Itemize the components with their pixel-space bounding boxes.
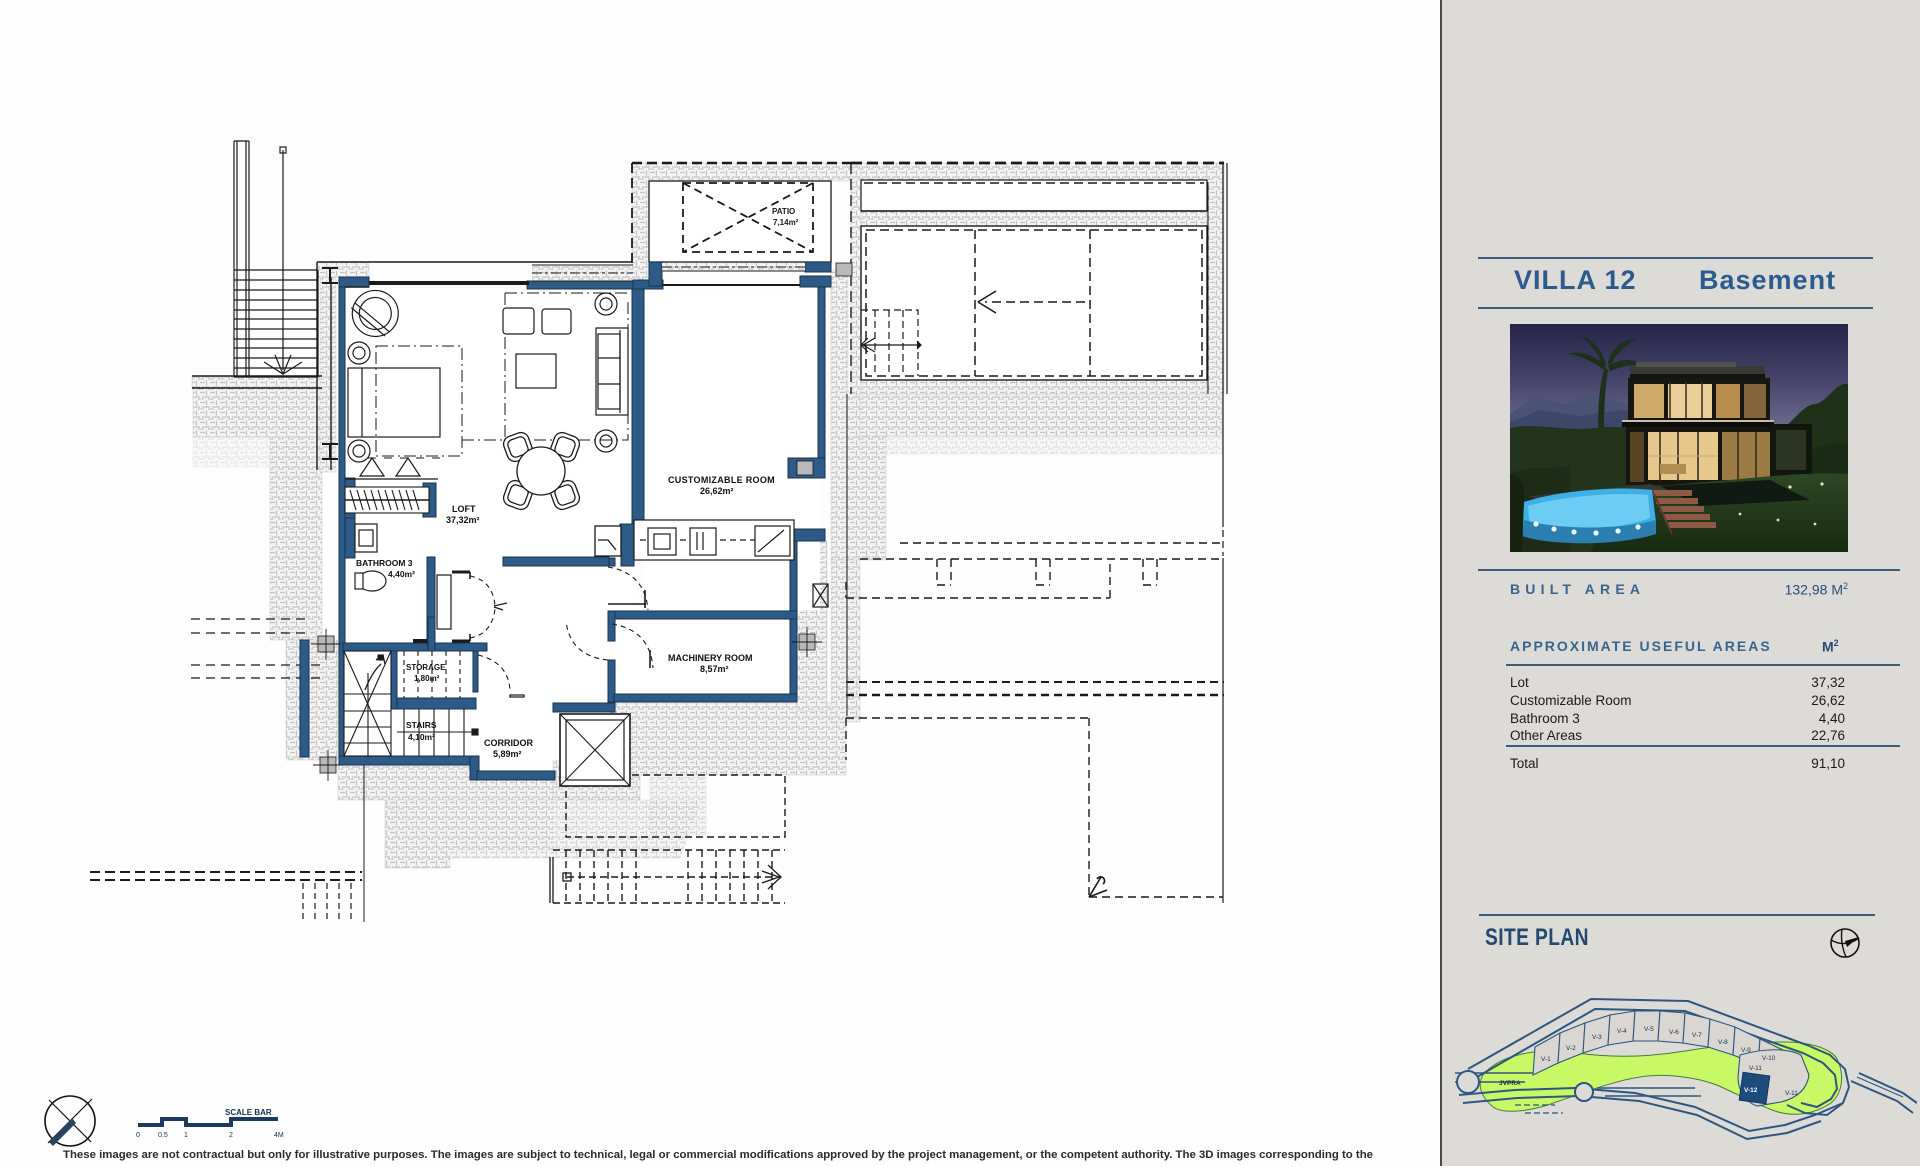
svg-text:V-9: V-9 bbox=[1741, 1047, 1751, 1054]
svg-text:CUSTOMIZABLE ROOM: CUSTOMIZABLE ROOM bbox=[668, 475, 775, 485]
svg-text:V-7: V-7 bbox=[1692, 1032, 1702, 1039]
svg-text:0.5: 0.5 bbox=[158, 1132, 168, 1139]
svg-text:0: 0 bbox=[136, 1132, 140, 1139]
svg-text:8,57m²: 8,57m² bbox=[700, 664, 729, 674]
svg-text:V-11: V-11 bbox=[1785, 1090, 1798, 1097]
svg-text:V-4: V-4 bbox=[1617, 1028, 1627, 1035]
svg-text:V-5: V-5 bbox=[1644, 1026, 1654, 1033]
svg-text:BATHROOM 3: BATHROOM 3 bbox=[356, 558, 413, 568]
svg-text:1: 1 bbox=[184, 1132, 188, 1139]
svg-text:PATIO: PATIO bbox=[772, 207, 795, 216]
svg-text:7,14m²: 7,14m² bbox=[773, 218, 799, 227]
svg-text:37,32m²: 37,32m² bbox=[446, 515, 480, 525]
svg-text:STORAGE: STORAGE bbox=[406, 663, 446, 672]
svg-text:26,62m²: 26,62m² bbox=[700, 486, 734, 496]
svg-text:CORRIDOR: CORRIDOR bbox=[484, 738, 533, 748]
svg-text:2: 2 bbox=[229, 1132, 233, 1139]
svg-text:LOFT: LOFT bbox=[452, 504, 476, 514]
svg-text:V-10: V-10 bbox=[1762, 1055, 1776, 1062]
svg-text:V-8: V-8 bbox=[1718, 1039, 1728, 1046]
svg-text:MACHINERY ROOM: MACHINERY ROOM bbox=[668, 653, 753, 663]
svg-text:4,40m²: 4,40m² bbox=[388, 569, 415, 579]
svg-text:4,10m²: 4,10m² bbox=[408, 732, 435, 742]
svg-text:SCALE BAR: SCALE BAR bbox=[225, 1108, 272, 1117]
svg-text:5,89m²: 5,89m² bbox=[493, 749, 522, 759]
svg-text:V-12: V-12 bbox=[1744, 1087, 1758, 1094]
svg-text:STAIRS: STAIRS bbox=[406, 720, 437, 730]
svg-text:4M: 4M bbox=[274, 1132, 284, 1139]
svg-text:V-3: V-3 bbox=[1592, 1034, 1602, 1041]
svg-text:V-11: V-11 bbox=[1749, 1065, 1762, 1072]
svg-text:V-1: V-1 bbox=[1541, 1056, 1551, 1063]
svg-text:V-6: V-6 bbox=[1669, 1029, 1679, 1036]
svg-text:JVPRA: JVPRA bbox=[1499, 1080, 1521, 1087]
svg-text:V-2: V-2 bbox=[1566, 1045, 1576, 1052]
svg-text:1,80m²: 1,80m² bbox=[414, 674, 440, 683]
